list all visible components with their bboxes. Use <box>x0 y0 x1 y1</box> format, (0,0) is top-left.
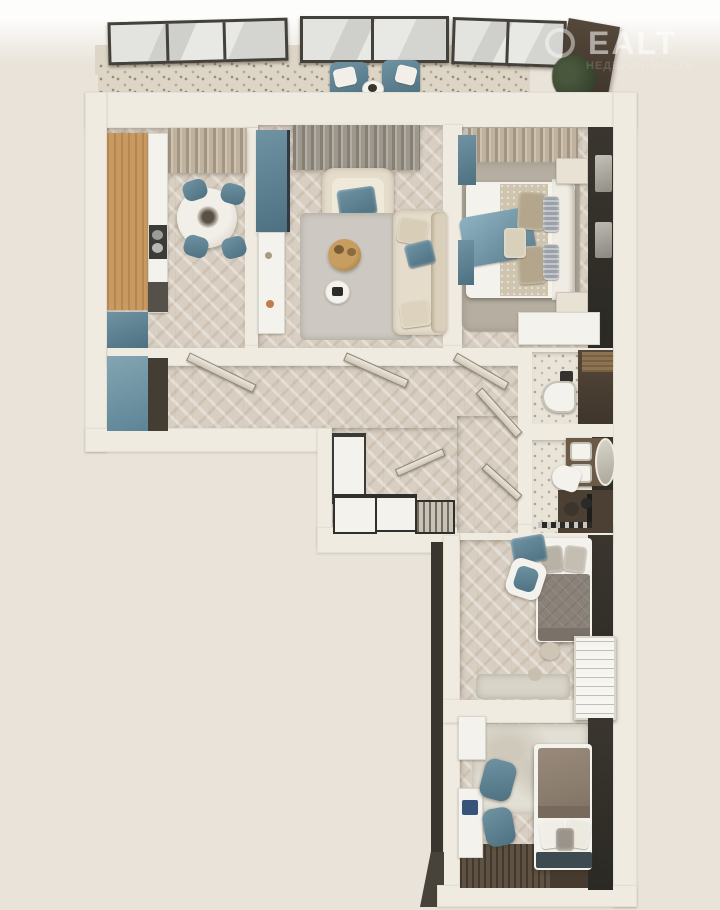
living-console <box>258 232 285 334</box>
oval-mirror <box>595 438 616 486</box>
bath-left-wall <box>518 348 532 538</box>
kitchen-base-cabinet <box>107 312 148 348</box>
bedroom2-rug <box>476 674 570 699</box>
bedroom3-pillow-small <box>556 828 574 850</box>
toilet <box>542 381 576 413</box>
master-dresser <box>518 312 600 345</box>
white-rack <box>574 636 616 720</box>
window-unit-left <box>107 18 288 66</box>
sofa-pillow-beige <box>398 298 431 329</box>
window-unit-middle <box>300 16 449 63</box>
towel-rail <box>538 522 592 528</box>
hallway-bottom-wall <box>85 428 330 452</box>
watermark-subtext: НЕДВИЖИМОСТЬ <box>586 60 695 72</box>
outer-wall-right <box>613 92 637 907</box>
wc-wood-shelf <box>582 352 613 372</box>
watermark-text: EALT <box>588 26 677 60</box>
coffee-table-plate <box>334 245 344 254</box>
nightstand-top <box>556 158 588 184</box>
pouf-small <box>528 668 542 681</box>
bottom-section-left-wall-dark-edge <box>431 542 443 892</box>
floor-plan-canvas: EALT НЕДВИЖИМОСТЬ <box>0 0 720 910</box>
side-table-tray <box>332 287 343 296</box>
coffee-table <box>328 239 361 271</box>
wardrobe-mirror-panel <box>595 222 612 258</box>
table-tray <box>368 84 377 92</box>
window-mullion <box>371 19 374 60</box>
desk-lower <box>458 788 483 858</box>
master-blue-wall-panel <box>458 240 474 285</box>
cooktop-pan <box>152 230 163 240</box>
living-curtain <box>293 125 420 170</box>
wardrobe-mirror-panel <box>595 155 612 192</box>
hallway-wardrobe <box>107 356 148 431</box>
outer-wall-top <box>85 92 637 128</box>
bedroom3-duvet-fold <box>538 806 590 818</box>
console-decor <box>265 252 272 259</box>
coffee-table-plate <box>347 248 356 256</box>
dining-table-centerpiece <box>197 206 219 228</box>
desk-upper <box>458 716 486 760</box>
master-blue-wall-panel <box>458 135 476 185</box>
window-mullion <box>505 22 509 63</box>
master-pillow-striped <box>543 196 559 232</box>
living-tall-cabinet <box>256 130 287 232</box>
sofa-backrest <box>431 212 447 333</box>
shower-stool <box>564 502 579 516</box>
kitchen-curtain <box>168 128 247 173</box>
window-mullion <box>223 22 227 59</box>
closet-drawer-unit <box>375 494 417 532</box>
desk-monitor <box>462 800 478 815</box>
window-mullion <box>166 24 170 61</box>
hallway-wardrobe-side <box>148 358 168 431</box>
cooktop-pan <box>152 243 163 253</box>
bedroom3-headboard <box>536 852 592 868</box>
pouf <box>540 642 560 660</box>
shower-head <box>581 498 592 509</box>
watermark-logo-circle <box>545 28 575 58</box>
master-lumbar-pillow <box>504 228 526 258</box>
closet-drawer-unit <box>333 494 377 534</box>
kitchen-sink-counter-dark <box>148 282 168 312</box>
master-pillow-striped <box>543 244 559 280</box>
master-pillow <box>517 191 547 231</box>
vanity-sink <box>570 442 592 461</box>
outer-wall-left <box>85 92 107 452</box>
bedroom2-pillow <box>562 545 587 573</box>
console-decor <box>266 300 274 308</box>
kitchen-cabinets-wood <box>107 133 148 310</box>
closet-bench-rack <box>415 500 455 534</box>
